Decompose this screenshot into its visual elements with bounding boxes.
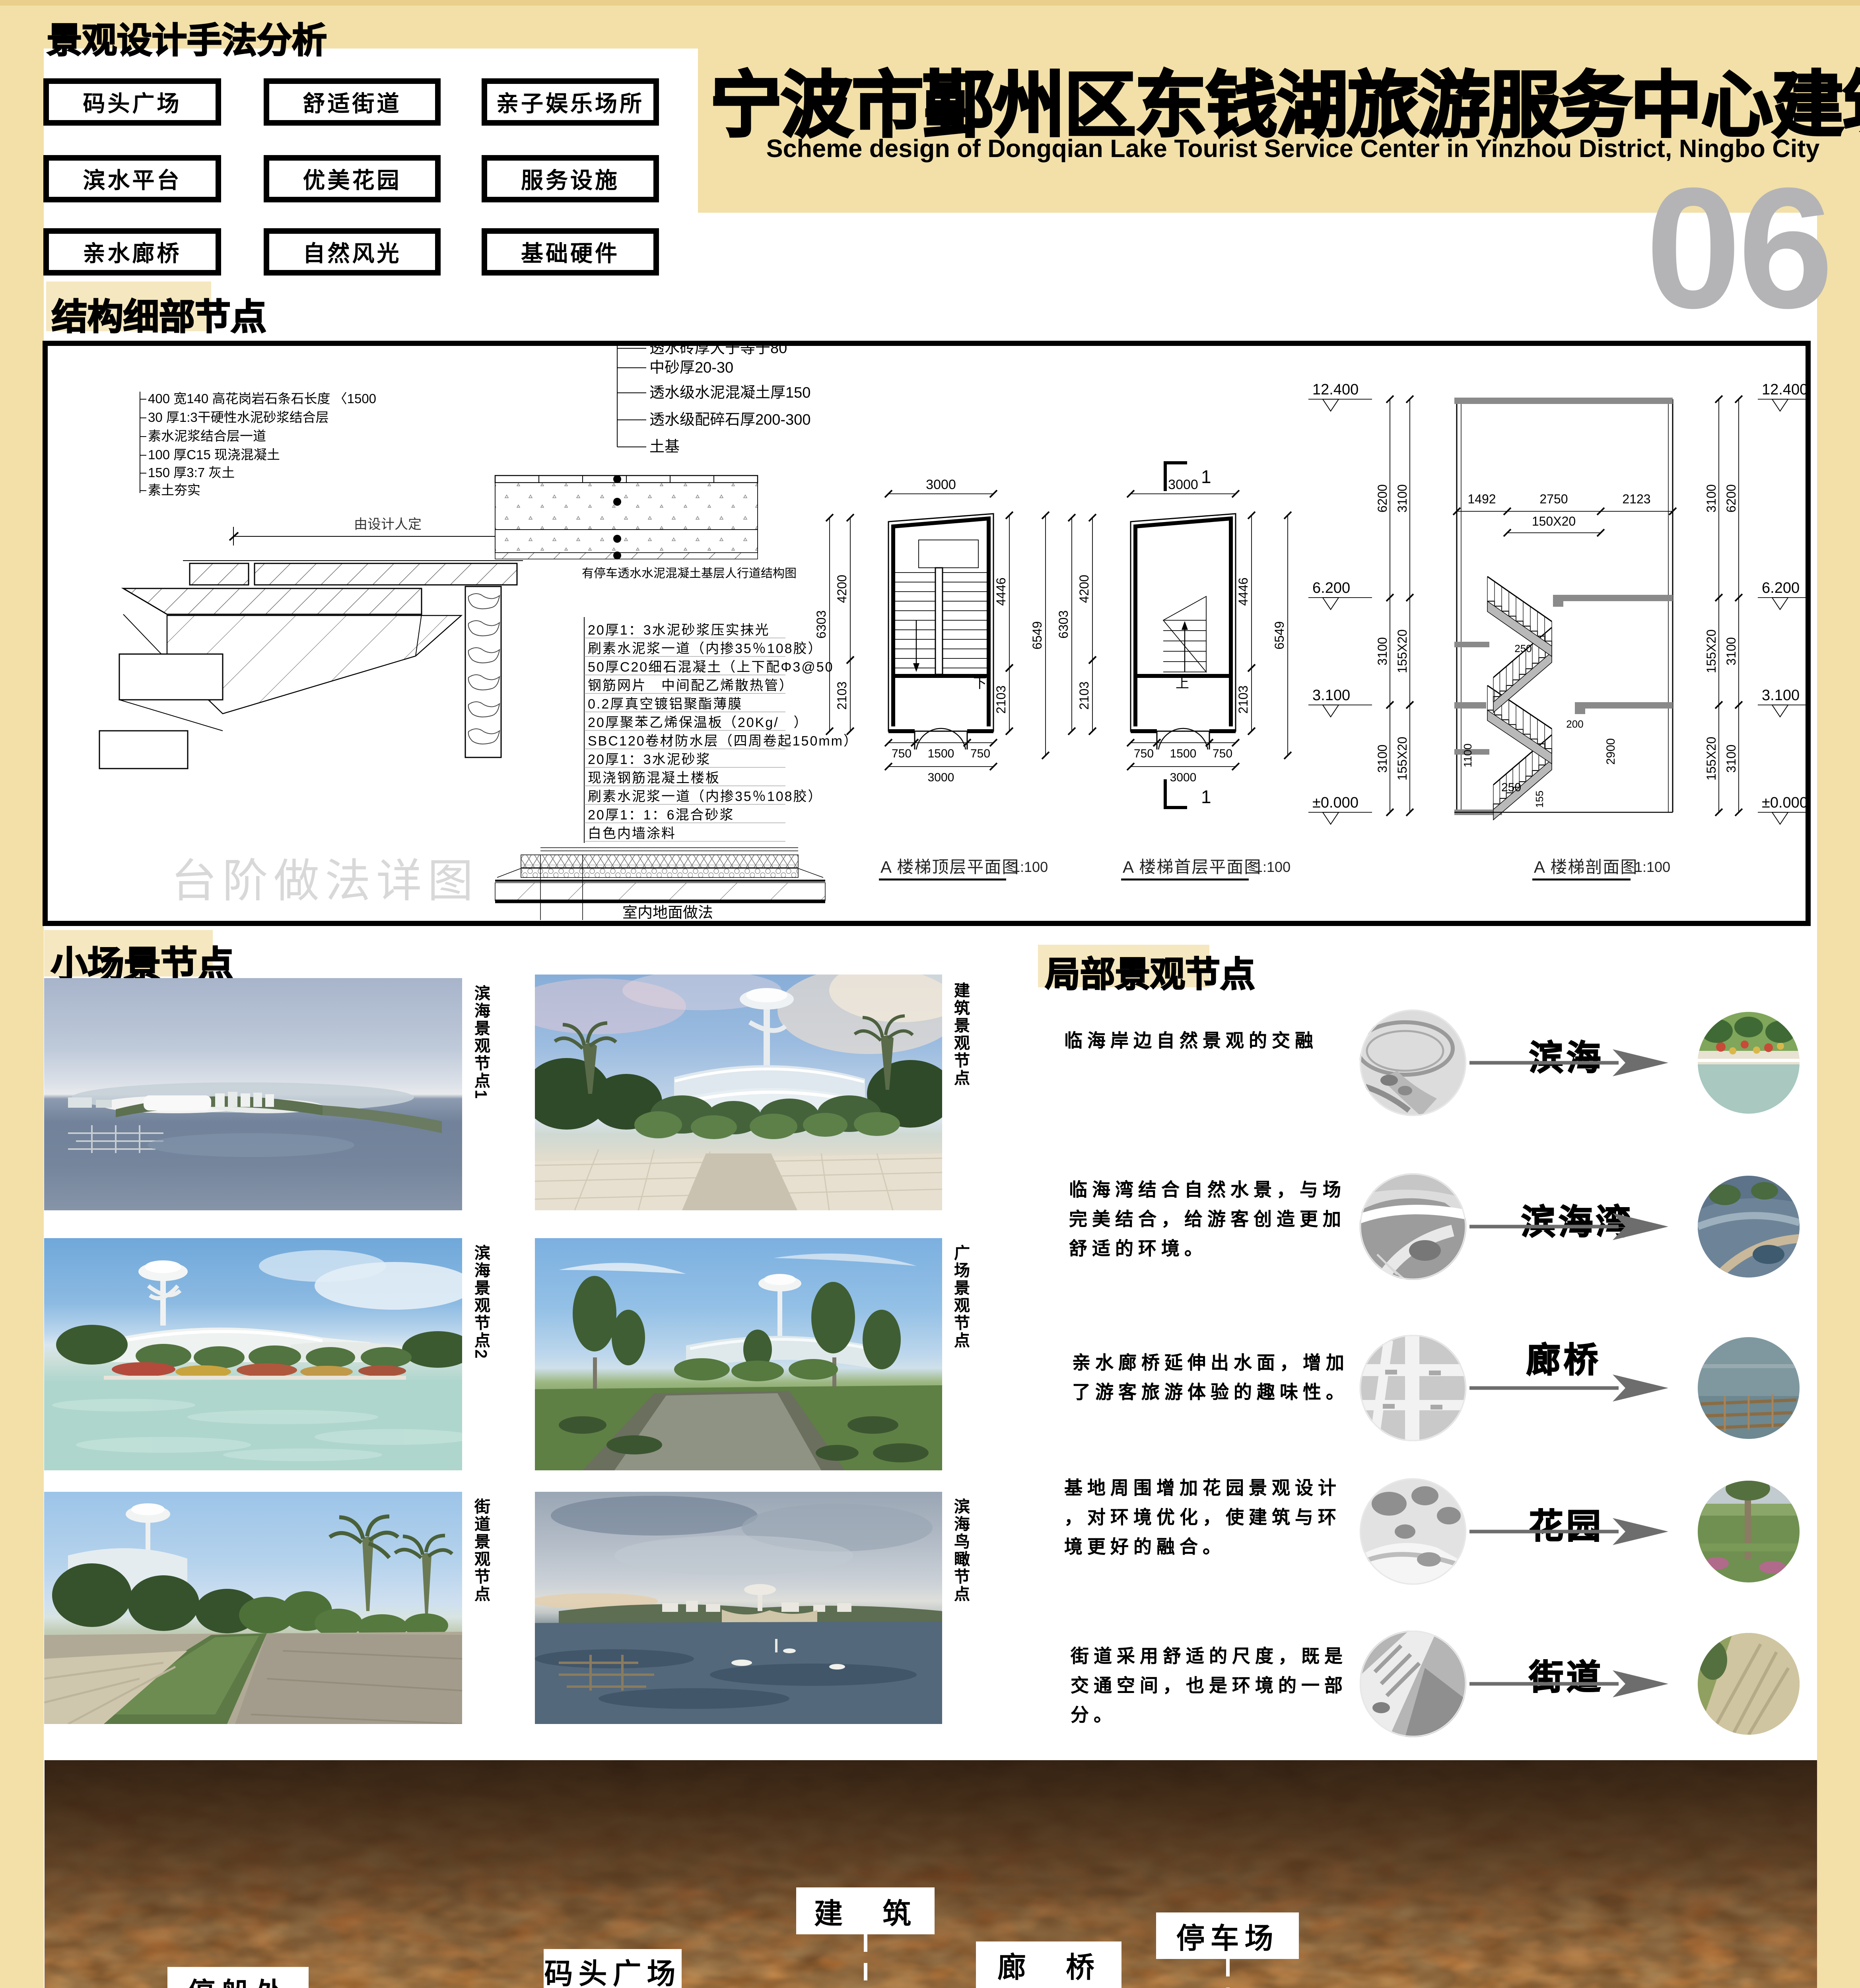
svg-text:A 楼梯剖面图: A 楼梯剖面图 (1534, 858, 1638, 876)
svg-text:2900: 2900 (1604, 738, 1617, 765)
svg-text:3100: 3100 (1375, 744, 1390, 773)
svg-text:2103: 2103 (1077, 681, 1091, 710)
svg-text:3000: 3000 (1170, 771, 1197, 784)
svg-text:台阶做法详图: 台阶做法详图 (171, 856, 479, 907)
svg-text:20厚聚苯乙烯保温板（20Kg/ ）: 20厚聚苯乙烯保温板（20Kg/ ） (588, 715, 809, 730)
svg-text:150X20: 150X20 (1532, 514, 1576, 528)
svg-text:200: 200 (1566, 718, 1583, 730)
svg-text:下: 下 (973, 676, 987, 691)
svg-text:6549: 6549 (1030, 621, 1044, 649)
svg-text:素水泥浆结合层一道: 素水泥浆结合层一道 (148, 429, 266, 443)
svg-text:750: 750 (970, 747, 990, 760)
svg-text:6.200: 6.200 (1312, 580, 1350, 596)
svg-text:6303: 6303 (1056, 610, 1071, 639)
svg-text:刷素水泥浆一道（内掺35％108胶）: 刷素水泥浆一道（内掺35％108胶） (588, 641, 823, 656)
svg-text:6.200: 6.200 (1762, 580, 1800, 596)
svg-text:上: 上 (1176, 676, 1189, 691)
svg-text:2103: 2103 (835, 681, 849, 710)
svg-text:3100: 3100 (1704, 484, 1718, 513)
svg-text:1: 1 (1201, 466, 1211, 487)
svg-text:SBC120卷材防水层（四周卷起150mm）: SBC120卷材防水层（四周卷起150mm） (588, 734, 858, 749)
svg-text:3100: 3100 (1375, 637, 1390, 665)
svg-text:3.100: 3.100 (1312, 687, 1350, 704)
svg-text:土基: 土基 (649, 439, 680, 455)
svg-text:1:100: 1:100 (1012, 859, 1048, 875)
svg-text:室内地面做法: 室内地面做法 (622, 905, 713, 921)
svg-text:6200: 6200 (1724, 484, 1738, 513)
svg-text:素土夯实: 素土夯实 (148, 483, 200, 497)
svg-text:有停车透水水泥混凝土基层人行道结构图: 有停车透水水泥混凝土基层人行道结构图 (582, 567, 797, 580)
svg-text:12.400: 12.400 (1762, 381, 1806, 398)
svg-text:12.400: 12.400 (1312, 381, 1359, 398)
svg-text:20厚1：3水泥砂浆: 20厚1：3水泥砂浆 (588, 752, 711, 767)
svg-text:现浇钢筋混凝土楼板: 现浇钢筋混凝土楼板 (588, 771, 720, 786)
svg-text:4200: 4200 (1077, 575, 1091, 603)
svg-text:400 宽140 高花岗岩石条石长度 〈1500: 400 宽140 高花岗岩石条石长度 〈1500 (148, 391, 376, 406)
svg-text:钢筋网片 中间配乙烯散热管）: 钢筋网片 中间配乙烯散热管） (588, 678, 794, 693)
svg-text:A 楼梯首层平面图: A 楼梯首层平面图 (1123, 858, 1261, 876)
svg-text:1500: 1500 (1170, 747, 1197, 760)
svg-text:155X20: 155X20 (1395, 629, 1409, 673)
svg-text:刷素水泥浆一道（内掺35％108胶）: 刷素水泥浆一道（内掺35％108胶） (588, 789, 823, 804)
svg-text:3100: 3100 (1395, 484, 1409, 513)
svg-text:20厚1：1：6混合砂浆: 20厚1：1：6混合砂浆 (588, 808, 735, 823)
svg-text:3100: 3100 (1724, 637, 1738, 665)
svg-text:150 厚3:7 灰土: 150 厚3:7 灰土 (148, 465, 235, 480)
svg-text:4200: 4200 (835, 575, 849, 603)
svg-text:250: 250 (1501, 781, 1521, 794)
svg-text:155: 155 (1533, 790, 1545, 808)
svg-text:±0.000: ±0.000 (1762, 794, 1806, 811)
svg-text:1:100: 1:100 (1635, 859, 1670, 875)
svg-text:750: 750 (1213, 747, 1232, 760)
svg-text:3000: 3000 (926, 477, 956, 492)
svg-text:透水级配碎石厚200-300: 透水级配碎石厚200-300 (649, 412, 810, 428)
svg-text:透水砖厚大于等于80: 透水砖厚大于等于80 (649, 346, 787, 357)
svg-text:A 楼梯顶层平面图: A 楼梯顶层平面图 (880, 858, 1019, 876)
svg-text:4446: 4446 (994, 577, 1008, 606)
svg-text:100 厚C15 现浇混凝土: 100 厚C15 现浇混凝土 (148, 447, 280, 462)
svg-text:3000: 3000 (928, 771, 954, 784)
svg-text:4446: 4446 (1236, 577, 1250, 606)
svg-text:20厚1：3水泥砂浆压实抹光: 20厚1：3水泥砂浆压实抹光 (588, 623, 770, 638)
svg-text:3100: 3100 (1724, 744, 1738, 773)
svg-text:中砂厚20-30: 中砂厚20-30 (649, 359, 733, 376)
svg-text:0.2厚真空镀铝聚酯薄膜: 0.2厚真空镀铝聚酯薄膜 (588, 697, 742, 712)
svg-text:6549: 6549 (1272, 621, 1287, 649)
svg-text:2103: 2103 (1236, 685, 1250, 714)
svg-text:1100: 1100 (1462, 744, 1474, 767)
svg-text:750: 750 (892, 747, 912, 760)
svg-text:6200: 6200 (1375, 484, 1390, 513)
svg-text:155X20: 155X20 (1704, 629, 1718, 673)
svg-text:2103: 2103 (994, 685, 1008, 714)
svg-text:155X20: 155X20 (1395, 737, 1409, 780)
svg-text:1: 1 (1201, 786, 1211, 807)
svg-text:白色内墙涂料: 白色内墙涂料 (588, 826, 676, 841)
svg-text:1:100: 1:100 (1255, 859, 1291, 875)
svg-text:透水级水泥混凝土厚150: 透水级水泥混凝土厚150 (649, 384, 810, 401)
svg-text:3000: 3000 (1168, 477, 1198, 492)
svg-text:750: 750 (1134, 747, 1154, 760)
svg-text:1500: 1500 (928, 747, 954, 760)
svg-text:155X20: 155X20 (1704, 737, 1718, 780)
svg-text:30 厚1:3干硬性水泥砂浆结合层: 30 厚1:3干硬性水泥砂浆结合层 (148, 410, 329, 425)
svg-text:±0.000: ±0.000 (1312, 794, 1359, 811)
svg-text:1492: 1492 (1467, 492, 1496, 506)
svg-text:50厚C20细石混凝土（上下配Φ3@50: 50厚C20细石混凝土（上下配Φ3@50 (588, 660, 834, 675)
svg-text:250: 250 (1514, 643, 1532, 654)
svg-text:由设计人定: 由设计人定 (354, 517, 422, 532)
svg-text:2123: 2123 (1622, 492, 1650, 506)
svg-text:2750: 2750 (1539, 492, 1568, 506)
svg-text:3.100: 3.100 (1762, 687, 1800, 704)
svg-text:6303: 6303 (814, 610, 828, 639)
